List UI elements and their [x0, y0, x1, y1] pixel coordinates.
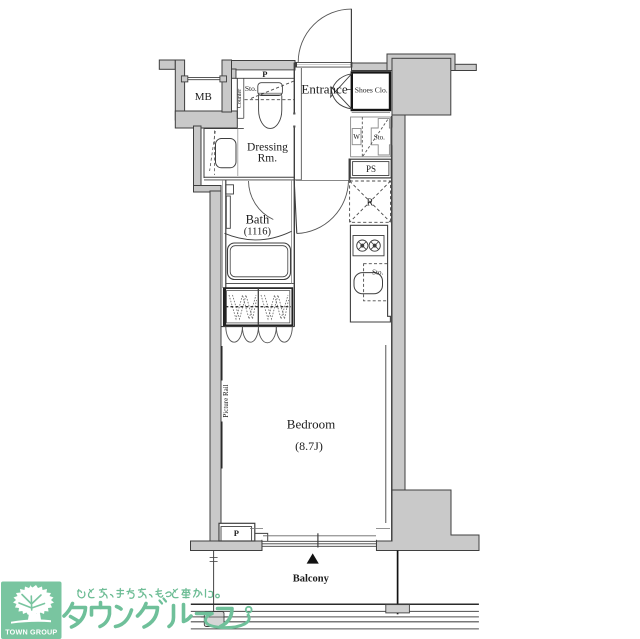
svg-text:PS: PS [366, 164, 376, 174]
svg-text:P: P [234, 528, 239, 538]
svg-text:Bath: Bath [246, 213, 270, 227]
svg-text:P: P [262, 69, 267, 79]
svg-text:Balcony: Balcony [293, 574, 330, 585]
svg-text:Sto.: Sto. [374, 133, 385, 141]
svg-text:Picture Rail: Picture Rail [222, 384, 230, 417]
svg-text:Rm.: Rm. [258, 153, 278, 165]
svg-text:(1116): (1116) [244, 227, 272, 238]
svg-text:Shoes Clo.: Shoes Clo. [355, 85, 388, 94]
svg-text:Entrance: Entrance [301, 82, 347, 97]
svg-text:(8.7J): (8.7J) [295, 439, 323, 453]
svg-text:Sto.: Sto. [245, 84, 257, 93]
svg-text:MB: MB [195, 91, 212, 103]
svg-text:TOWN GROUP: TOWN GROUP [5, 628, 57, 637]
svg-text:Sto.: Sto. [372, 269, 383, 277]
svg-text:Counter: Counter [237, 89, 243, 108]
svg-text:W: W [353, 133, 360, 141]
svg-text:Bedroom: Bedroom [287, 416, 335, 431]
svg-text:R: R [367, 197, 374, 208]
svg-text:Dressing: Dressing [247, 141, 288, 153]
